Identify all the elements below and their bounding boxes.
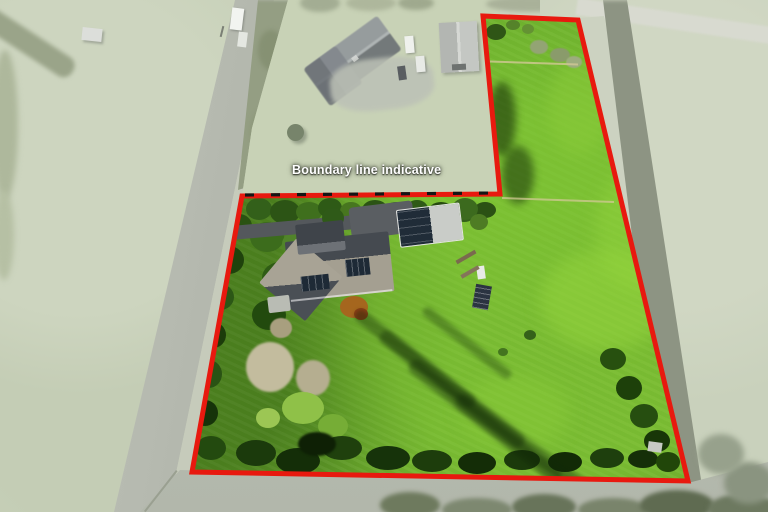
tree-canopy — [246, 198, 272, 220]
tree-canopy — [458, 452, 496, 474]
bare-tree — [530, 40, 548, 54]
bare-tree — [296, 360, 330, 396]
shrub — [506, 20, 520, 30]
solar-panel-array — [300, 274, 329, 292]
bare-tree — [566, 56, 582, 68]
shed-topleft — [81, 27, 102, 42]
aerial-photo: Boundary line indicative — [0, 0, 768, 512]
trampoline — [287, 124, 304, 141]
barn-door — [452, 64, 466, 71]
tree-canopy — [630, 404, 658, 428]
garage — [393, 196, 469, 256]
tree-canopy — [486, 24, 506, 40]
tree-canopy — [412, 450, 452, 472]
garage-solar-grid — [397, 207, 433, 245]
car — [415, 56, 425, 73]
shrub-lime — [282, 392, 324, 424]
small-shed — [647, 441, 662, 453]
tree-canopy — [470, 214, 488, 230]
scrub — [640, 490, 714, 512]
pond-shadow — [298, 432, 336, 456]
tree-shadow — [502, 146, 534, 204]
solar-panel-array — [345, 257, 371, 276]
tree-canopy — [616, 376, 642, 400]
house-roof-upper — [295, 220, 346, 255]
tree-canopy — [366, 446, 410, 470]
shrub-lime — [256, 408, 280, 428]
lone-tree — [524, 330, 536, 340]
bare-tree — [246, 342, 294, 392]
scrub — [698, 434, 744, 474]
car-on-road — [237, 32, 248, 48]
tree-canopy — [656, 452, 680, 472]
tree-canopy — [236, 440, 276, 466]
scrub — [380, 492, 440, 512]
boundary-label: Boundary line indicative — [292, 163, 441, 177]
tree-canopy — [628, 450, 658, 468]
shrub — [522, 24, 534, 34]
car — [404, 36, 414, 54]
tree-canopy — [590, 448, 624, 468]
tree-canopy — [196, 436, 226, 460]
tree-canopy — [600, 348, 626, 370]
patio — [267, 295, 291, 314]
lone-tree — [498, 348, 508, 356]
